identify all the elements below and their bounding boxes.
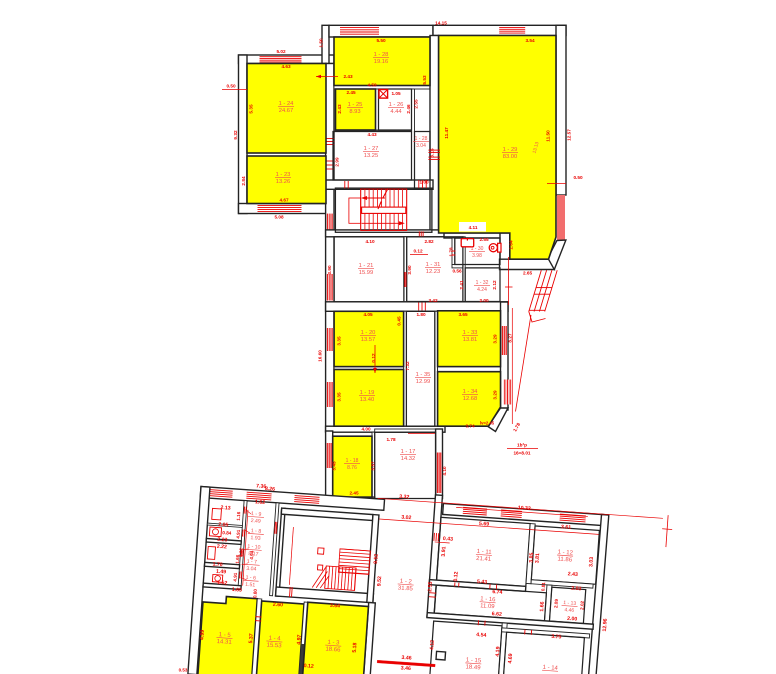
svg-text:11.50: 11.50 xyxy=(546,130,551,142)
svg-text:1 - 18: 1 - 18 xyxy=(346,458,359,464)
svg-text:19.16: 19.16 xyxy=(374,59,389,65)
svg-text:1.66: 1.66 xyxy=(235,554,241,564)
svg-text:1.62: 1.62 xyxy=(217,580,228,587)
svg-text:2.43: 2.43 xyxy=(337,104,342,114)
svg-text:3.91: 3.91 xyxy=(441,546,448,557)
svg-text:11.09: 11.09 xyxy=(480,603,496,610)
svg-text:3.35: 3.35 xyxy=(337,336,342,346)
svg-text:2.41: 2.41 xyxy=(459,280,464,290)
svg-text:3.64: 3.64 xyxy=(330,603,341,610)
svg-text:8.26: 8.26 xyxy=(265,486,276,493)
svg-text:5.43: 5.43 xyxy=(477,579,488,586)
svg-text:15.53: 15.53 xyxy=(266,642,282,649)
svg-text:4.63: 4.63 xyxy=(281,64,291,69)
svg-text:3.15: 3.15 xyxy=(430,148,435,158)
svg-text:4.46: 4.46 xyxy=(564,607,574,614)
svg-text:12.96: 12.96 xyxy=(602,618,609,631)
svg-text:1 - 35: 1 - 35 xyxy=(416,372,431,378)
svg-text:0.12: 0.12 xyxy=(453,571,460,582)
svg-text:2.55: 2.55 xyxy=(479,237,489,242)
svg-text:4.05: 4.05 xyxy=(363,312,373,317)
svg-text:1 - 31: 1 - 31 xyxy=(426,262,441,268)
svg-text:4.99: 4.99 xyxy=(199,630,206,641)
svg-text:1 - 26: 1 - 26 xyxy=(389,102,404,108)
svg-text:14.31: 14.31 xyxy=(216,639,232,646)
svg-text:2.00: 2.00 xyxy=(567,616,578,623)
svg-text:8.93: 8.93 xyxy=(349,109,360,115)
svg-text:1.49: 1.49 xyxy=(216,569,227,576)
svg-text:1 - 28: 1 - 28 xyxy=(415,136,428,142)
svg-text:2.23: 2.23 xyxy=(217,537,228,544)
svg-text:0.45: 0.45 xyxy=(397,316,402,326)
svg-text:1.00: 1.00 xyxy=(419,180,429,185)
svg-text:1.50: 1.50 xyxy=(319,38,324,48)
svg-text:0.84: 0.84 xyxy=(222,530,232,536)
svg-text:3.04: 3.04 xyxy=(246,566,257,573)
svg-text:4.91: 4.91 xyxy=(232,572,238,582)
svg-text:1b³p: 1b³p xyxy=(517,443,527,448)
svg-text:4.44: 4.44 xyxy=(390,109,402,115)
svg-text:5.08: 5.08 xyxy=(274,215,284,220)
svg-text:8.76: 8.76 xyxy=(347,465,357,471)
svg-text:1 - 25: 1 - 25 xyxy=(348,102,363,108)
svg-text:3.46: 3.46 xyxy=(401,665,412,672)
svg-text:2.55: 2.55 xyxy=(414,99,419,109)
svg-text:4.91: 4.91 xyxy=(235,529,241,539)
svg-text:1 - 32: 1 - 32 xyxy=(476,280,489,286)
svg-text:1.51: 1.51 xyxy=(245,582,256,589)
svg-text:2.03: 2.03 xyxy=(571,586,582,593)
svg-text:1 - 27: 1 - 27 xyxy=(364,146,379,152)
svg-text:4.10: 4.10 xyxy=(442,466,447,476)
svg-text:5.50: 5.50 xyxy=(376,38,386,43)
svg-text:13.25: 13.25 xyxy=(364,153,379,159)
svg-text:16=8.01: 16=8.01 xyxy=(513,451,530,456)
svg-text:2.45: 2.45 xyxy=(349,491,359,496)
svg-text:2.46: 2.46 xyxy=(406,104,411,114)
svg-text:4.69: 4.69 xyxy=(507,653,514,664)
svg-text:31.85: 31.85 xyxy=(398,585,414,592)
svg-text:1.78: 1.78 xyxy=(386,437,396,442)
svg-text:4.10: 4.10 xyxy=(365,239,375,244)
svg-text:1.66: 1.66 xyxy=(539,601,546,612)
svg-text:lv=2.45: lv=2.45 xyxy=(480,421,495,426)
svg-text:3.75: 3.75 xyxy=(551,634,562,641)
svg-text:2.99: 2.99 xyxy=(335,157,340,167)
svg-text:1.70: 1.70 xyxy=(212,562,223,569)
svg-text:15.99: 15.99 xyxy=(359,270,374,276)
svg-text:0.80: 0.80 xyxy=(252,588,258,598)
svg-text:4.00: 4.00 xyxy=(361,427,371,432)
svg-text:0.12: 0.12 xyxy=(371,353,376,363)
svg-text:1.65: 1.65 xyxy=(232,587,243,594)
svg-text:4.43: 4.43 xyxy=(367,132,377,137)
svg-text:1 - 20: 1 - 20 xyxy=(361,330,376,336)
svg-text:2.22: 2.22 xyxy=(217,544,228,551)
svg-text:3.32: 3.32 xyxy=(399,494,410,501)
svg-text:4.67: 4.67 xyxy=(279,198,289,203)
svg-text:18.49: 18.49 xyxy=(465,664,481,671)
svg-text:3.74: 3.74 xyxy=(465,424,475,429)
svg-text:24.67: 24.67 xyxy=(279,108,294,114)
svg-text:9.32: 9.32 xyxy=(233,130,238,140)
svg-text:12.57: 12.57 xyxy=(567,129,572,141)
svg-text:4.97: 4.97 xyxy=(296,634,303,645)
svg-text:6.62: 6.62 xyxy=(492,611,503,618)
svg-text:4.54: 4.54 xyxy=(476,632,487,639)
svg-text:3.87: 3.87 xyxy=(371,461,376,471)
svg-text:9.52: 9.52 xyxy=(376,576,383,587)
svg-text:1.64: 1.64 xyxy=(509,240,514,250)
svg-text:13.40: 13.40 xyxy=(360,397,375,403)
svg-text:5.53: 5.53 xyxy=(422,75,427,85)
svg-text:0.53: 0.53 xyxy=(179,668,188,673)
svg-text:3.61: 3.61 xyxy=(561,524,572,531)
svg-text:0.50: 0.50 xyxy=(226,84,236,89)
svg-text:1.05: 1.05 xyxy=(391,91,401,96)
svg-text:1 - 24: 1 - 24 xyxy=(279,101,295,107)
svg-text:2.65: 2.65 xyxy=(523,271,533,276)
svg-text:0.81: 0.81 xyxy=(541,582,547,592)
svg-text:4.12: 4.12 xyxy=(429,640,436,651)
svg-text:3.02: 3.02 xyxy=(401,515,412,522)
svg-text:14.15: 14.15 xyxy=(435,20,447,25)
svg-text:4.59: 4.59 xyxy=(367,83,377,88)
svg-text:2.82: 2.82 xyxy=(424,239,434,244)
svg-text:5.35: 5.35 xyxy=(249,104,254,114)
svg-text:0.43: 0.43 xyxy=(443,536,454,543)
svg-text:1.93: 1.93 xyxy=(250,535,261,542)
svg-text:13.26: 13.26 xyxy=(276,179,291,185)
svg-text:2.55: 2.55 xyxy=(427,581,434,592)
svg-text:3.98: 3.98 xyxy=(472,253,482,259)
svg-text:5.18: 5.18 xyxy=(352,642,359,653)
svg-text:1 - 34: 1 - 34 xyxy=(463,389,479,395)
svg-text:4.94: 4.94 xyxy=(249,550,255,560)
svg-text:1.78: 1.78 xyxy=(449,247,454,257)
svg-text:2.84: 2.84 xyxy=(241,176,246,186)
svg-text:2.12: 2.12 xyxy=(492,280,497,290)
svg-text:0.12: 0.12 xyxy=(303,663,314,670)
svg-text:3.04: 3.04 xyxy=(416,143,426,149)
svg-text:1 - 17: 1 - 17 xyxy=(401,449,416,455)
svg-text:3.03: 3.03 xyxy=(588,557,595,568)
svg-text:83.00: 83.00 xyxy=(503,154,518,160)
svg-text:5.37: 5.37 xyxy=(248,633,255,644)
svg-text:2.05: 2.05 xyxy=(218,522,229,529)
svg-text:1 - 19: 1 - 19 xyxy=(360,390,375,396)
svg-text:13.57: 13.57 xyxy=(361,337,376,343)
svg-text:18.66: 18.66 xyxy=(325,647,341,654)
svg-text:0.56: 0.56 xyxy=(452,269,462,274)
svg-text:2.49: 2.49 xyxy=(250,518,261,525)
svg-text:1 - 30: 1 - 30 xyxy=(471,246,484,252)
svg-text:3.42: 3.42 xyxy=(428,298,438,303)
svg-text:13.81: 13.81 xyxy=(463,337,478,343)
svg-text:3.35: 3.35 xyxy=(337,392,342,402)
svg-text:3.29: 3.29 xyxy=(493,390,498,400)
svg-text:11.86: 11.86 xyxy=(557,557,573,564)
svg-text:3.46: 3.46 xyxy=(401,655,412,662)
svg-text:2.43: 2.43 xyxy=(568,571,579,578)
svg-text:12.99: 12.99 xyxy=(416,379,431,385)
svg-text:3.65: 3.65 xyxy=(458,312,468,317)
svg-text:3.90: 3.90 xyxy=(407,265,412,275)
svg-text:1 - 33: 1 - 33 xyxy=(463,330,478,336)
svg-text:3.81: 3.81 xyxy=(534,553,541,564)
svg-text:2.45: 2.45 xyxy=(346,90,356,95)
svg-text:1.16: 1.16 xyxy=(236,511,242,521)
svg-text:7.32: 7.32 xyxy=(405,361,410,371)
svg-text:2.43: 2.43 xyxy=(343,74,353,79)
svg-text:1 - 29: 1 - 29 xyxy=(503,147,518,153)
svg-text:3.29: 3.29 xyxy=(493,334,498,344)
svg-text:1 - 28: 1 - 28 xyxy=(374,52,389,58)
svg-text:4.24: 4.24 xyxy=(477,287,487,293)
svg-text:9.52: 9.52 xyxy=(373,554,380,565)
svg-text:2.02: 2.02 xyxy=(579,600,585,610)
svg-text:2.60: 2.60 xyxy=(273,602,284,609)
svg-text:4.19: 4.19 xyxy=(495,646,502,657)
svg-text:14.32: 14.32 xyxy=(401,456,416,462)
svg-text:4.11: 4.11 xyxy=(469,225,478,230)
svg-text:12.23: 12.23 xyxy=(426,269,441,275)
svg-text:21.41: 21.41 xyxy=(476,556,492,563)
svg-text:16.60: 16.60 xyxy=(318,350,323,362)
svg-text:2.13: 2.13 xyxy=(220,505,231,512)
svg-text:1 - 23: 1 - 23 xyxy=(276,172,291,178)
svg-text:1.80: 1.80 xyxy=(416,312,426,317)
svg-text:12.68: 12.68 xyxy=(463,396,478,402)
svg-text:5.02: 5.02 xyxy=(276,49,286,54)
svg-text:6.74: 6.74 xyxy=(492,589,503,596)
svg-text:3.45: 3.45 xyxy=(332,461,337,471)
svg-text:11.47: 11.47 xyxy=(444,127,449,139)
svg-text:0.50: 0.50 xyxy=(573,175,583,180)
svg-text:2.09: 2.09 xyxy=(553,598,559,608)
svg-text:0.12: 0.12 xyxy=(413,249,423,254)
svg-text:5.69: 5.69 xyxy=(479,521,490,528)
svg-text:3.54: 3.54 xyxy=(525,38,535,43)
svg-text:1.62: 1.62 xyxy=(255,499,266,506)
svg-text:2.00: 2.00 xyxy=(479,298,489,303)
svg-text:8.27: 8.27 xyxy=(508,333,513,343)
svg-text:1 - 21: 1 - 21 xyxy=(359,263,374,269)
svg-text:10.32: 10.32 xyxy=(518,505,531,512)
svg-text:3.90: 3.90 xyxy=(327,265,332,275)
